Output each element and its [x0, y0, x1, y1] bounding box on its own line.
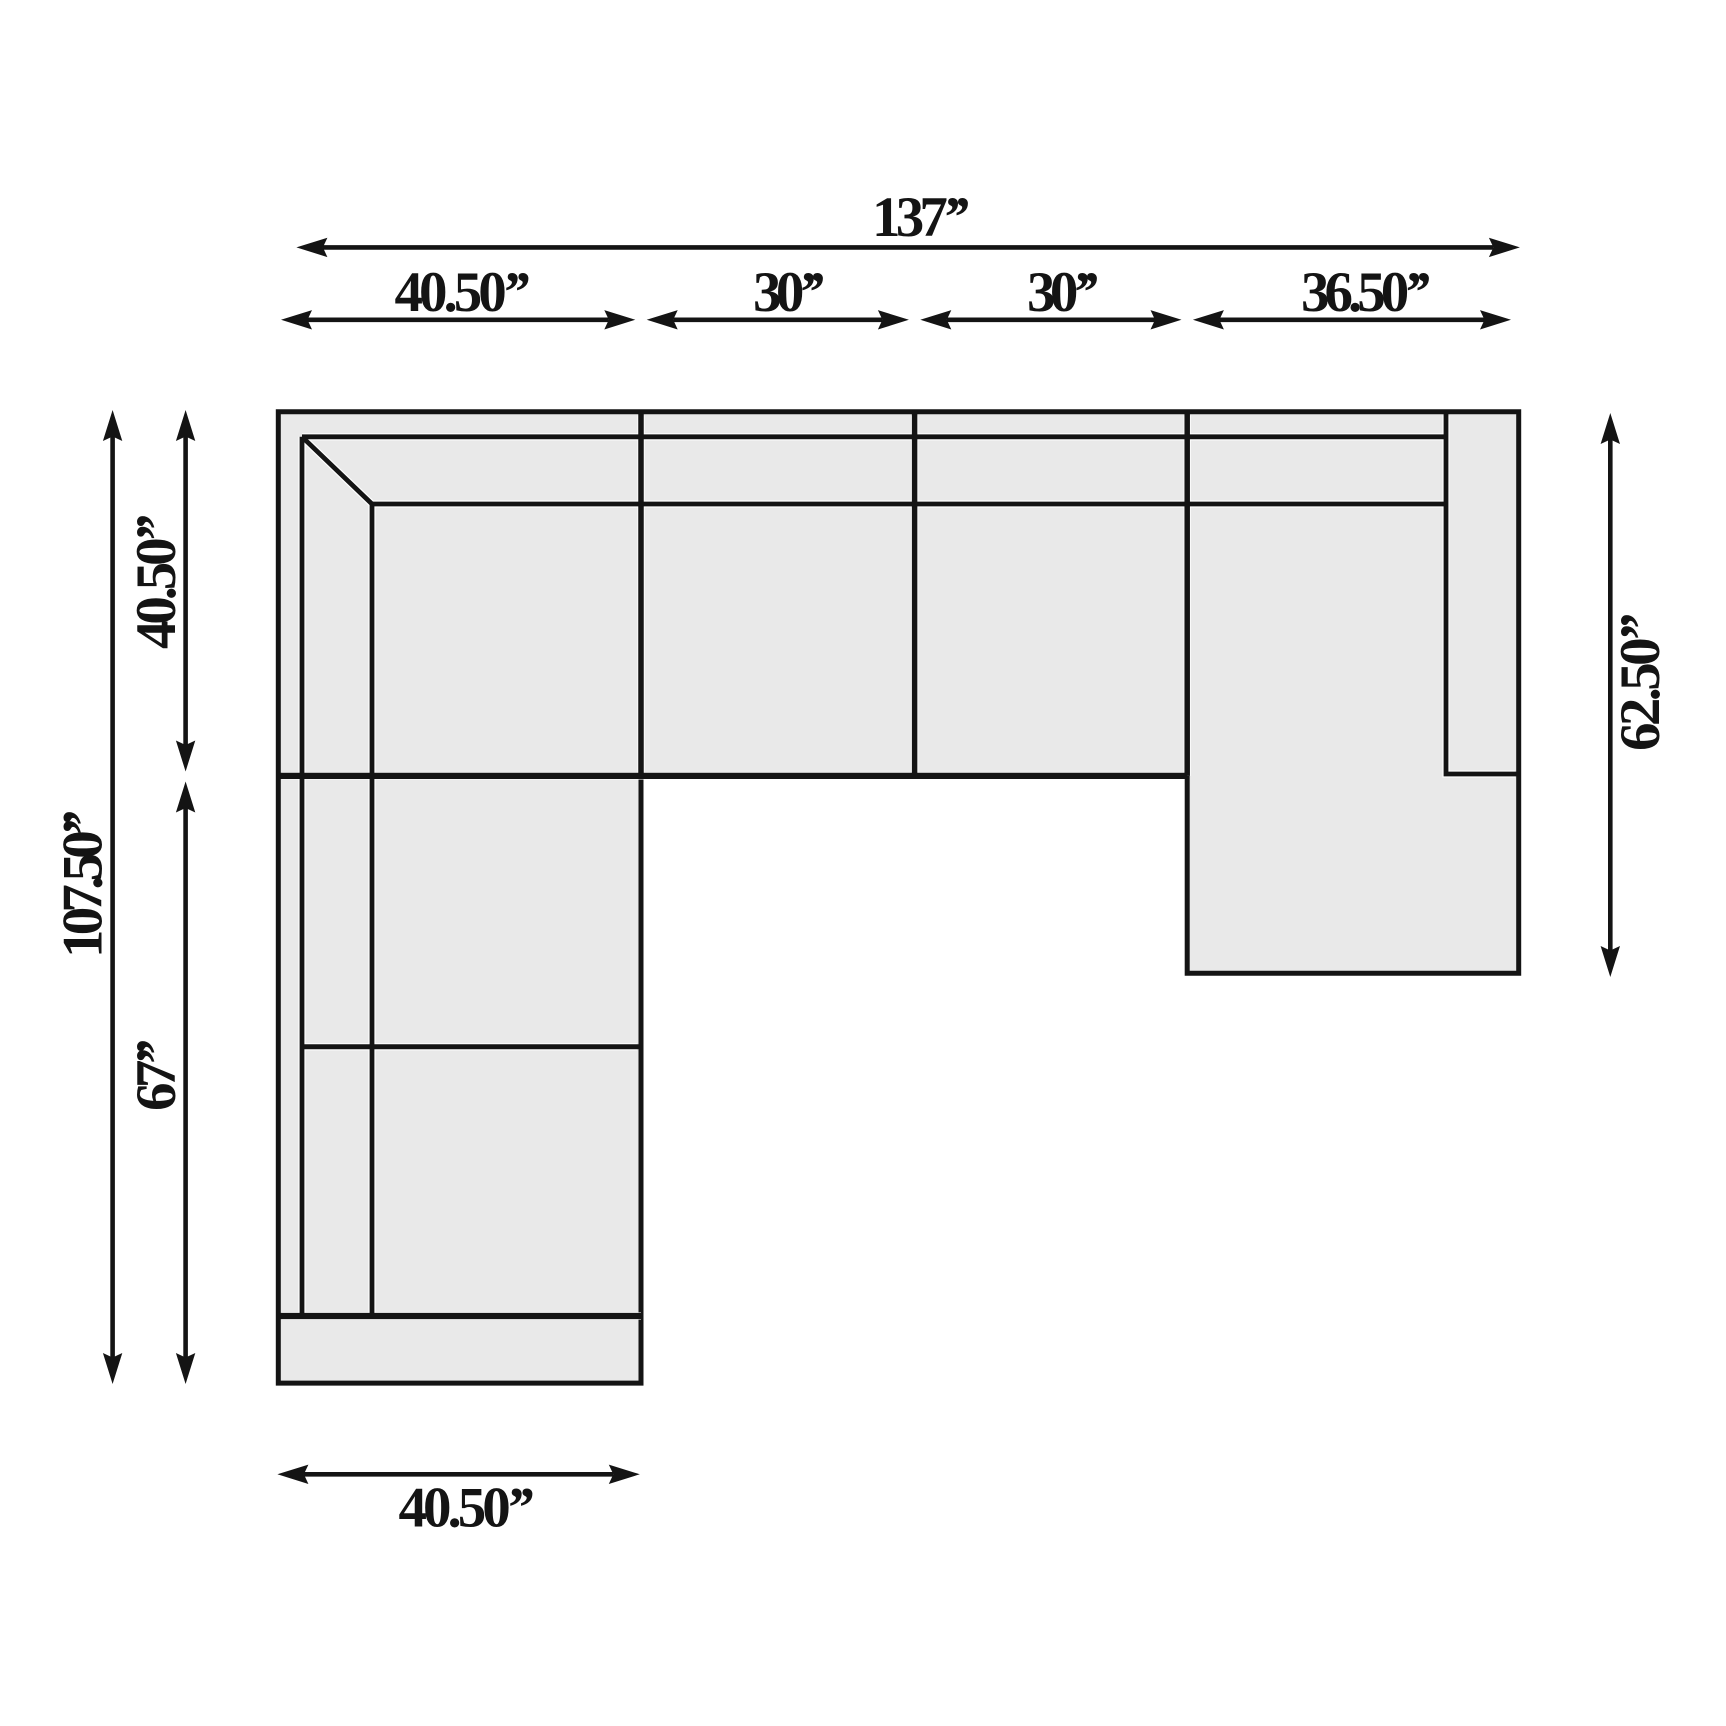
svg-text:67’’: 67’’ [125, 1037, 188, 1111]
svg-text:40.50’’: 40.50’’ [399, 1477, 537, 1540]
svg-text:36.50’’: 36.50’’ [1301, 261, 1433, 324]
svg-text:40.50’’: 40.50’’ [125, 512, 188, 649]
svg-text:137’’: 137’’ [872, 186, 972, 249]
svg-text:30’’: 30’’ [753, 261, 827, 324]
svg-text:62.50’’: 62.50’’ [1609, 611, 1672, 751]
svg-text:30’’: 30’’ [1027, 261, 1101, 324]
svg-text:40.50’’: 40.50’’ [395, 261, 533, 324]
svg-text:107.50’’: 107.50’’ [52, 808, 115, 958]
